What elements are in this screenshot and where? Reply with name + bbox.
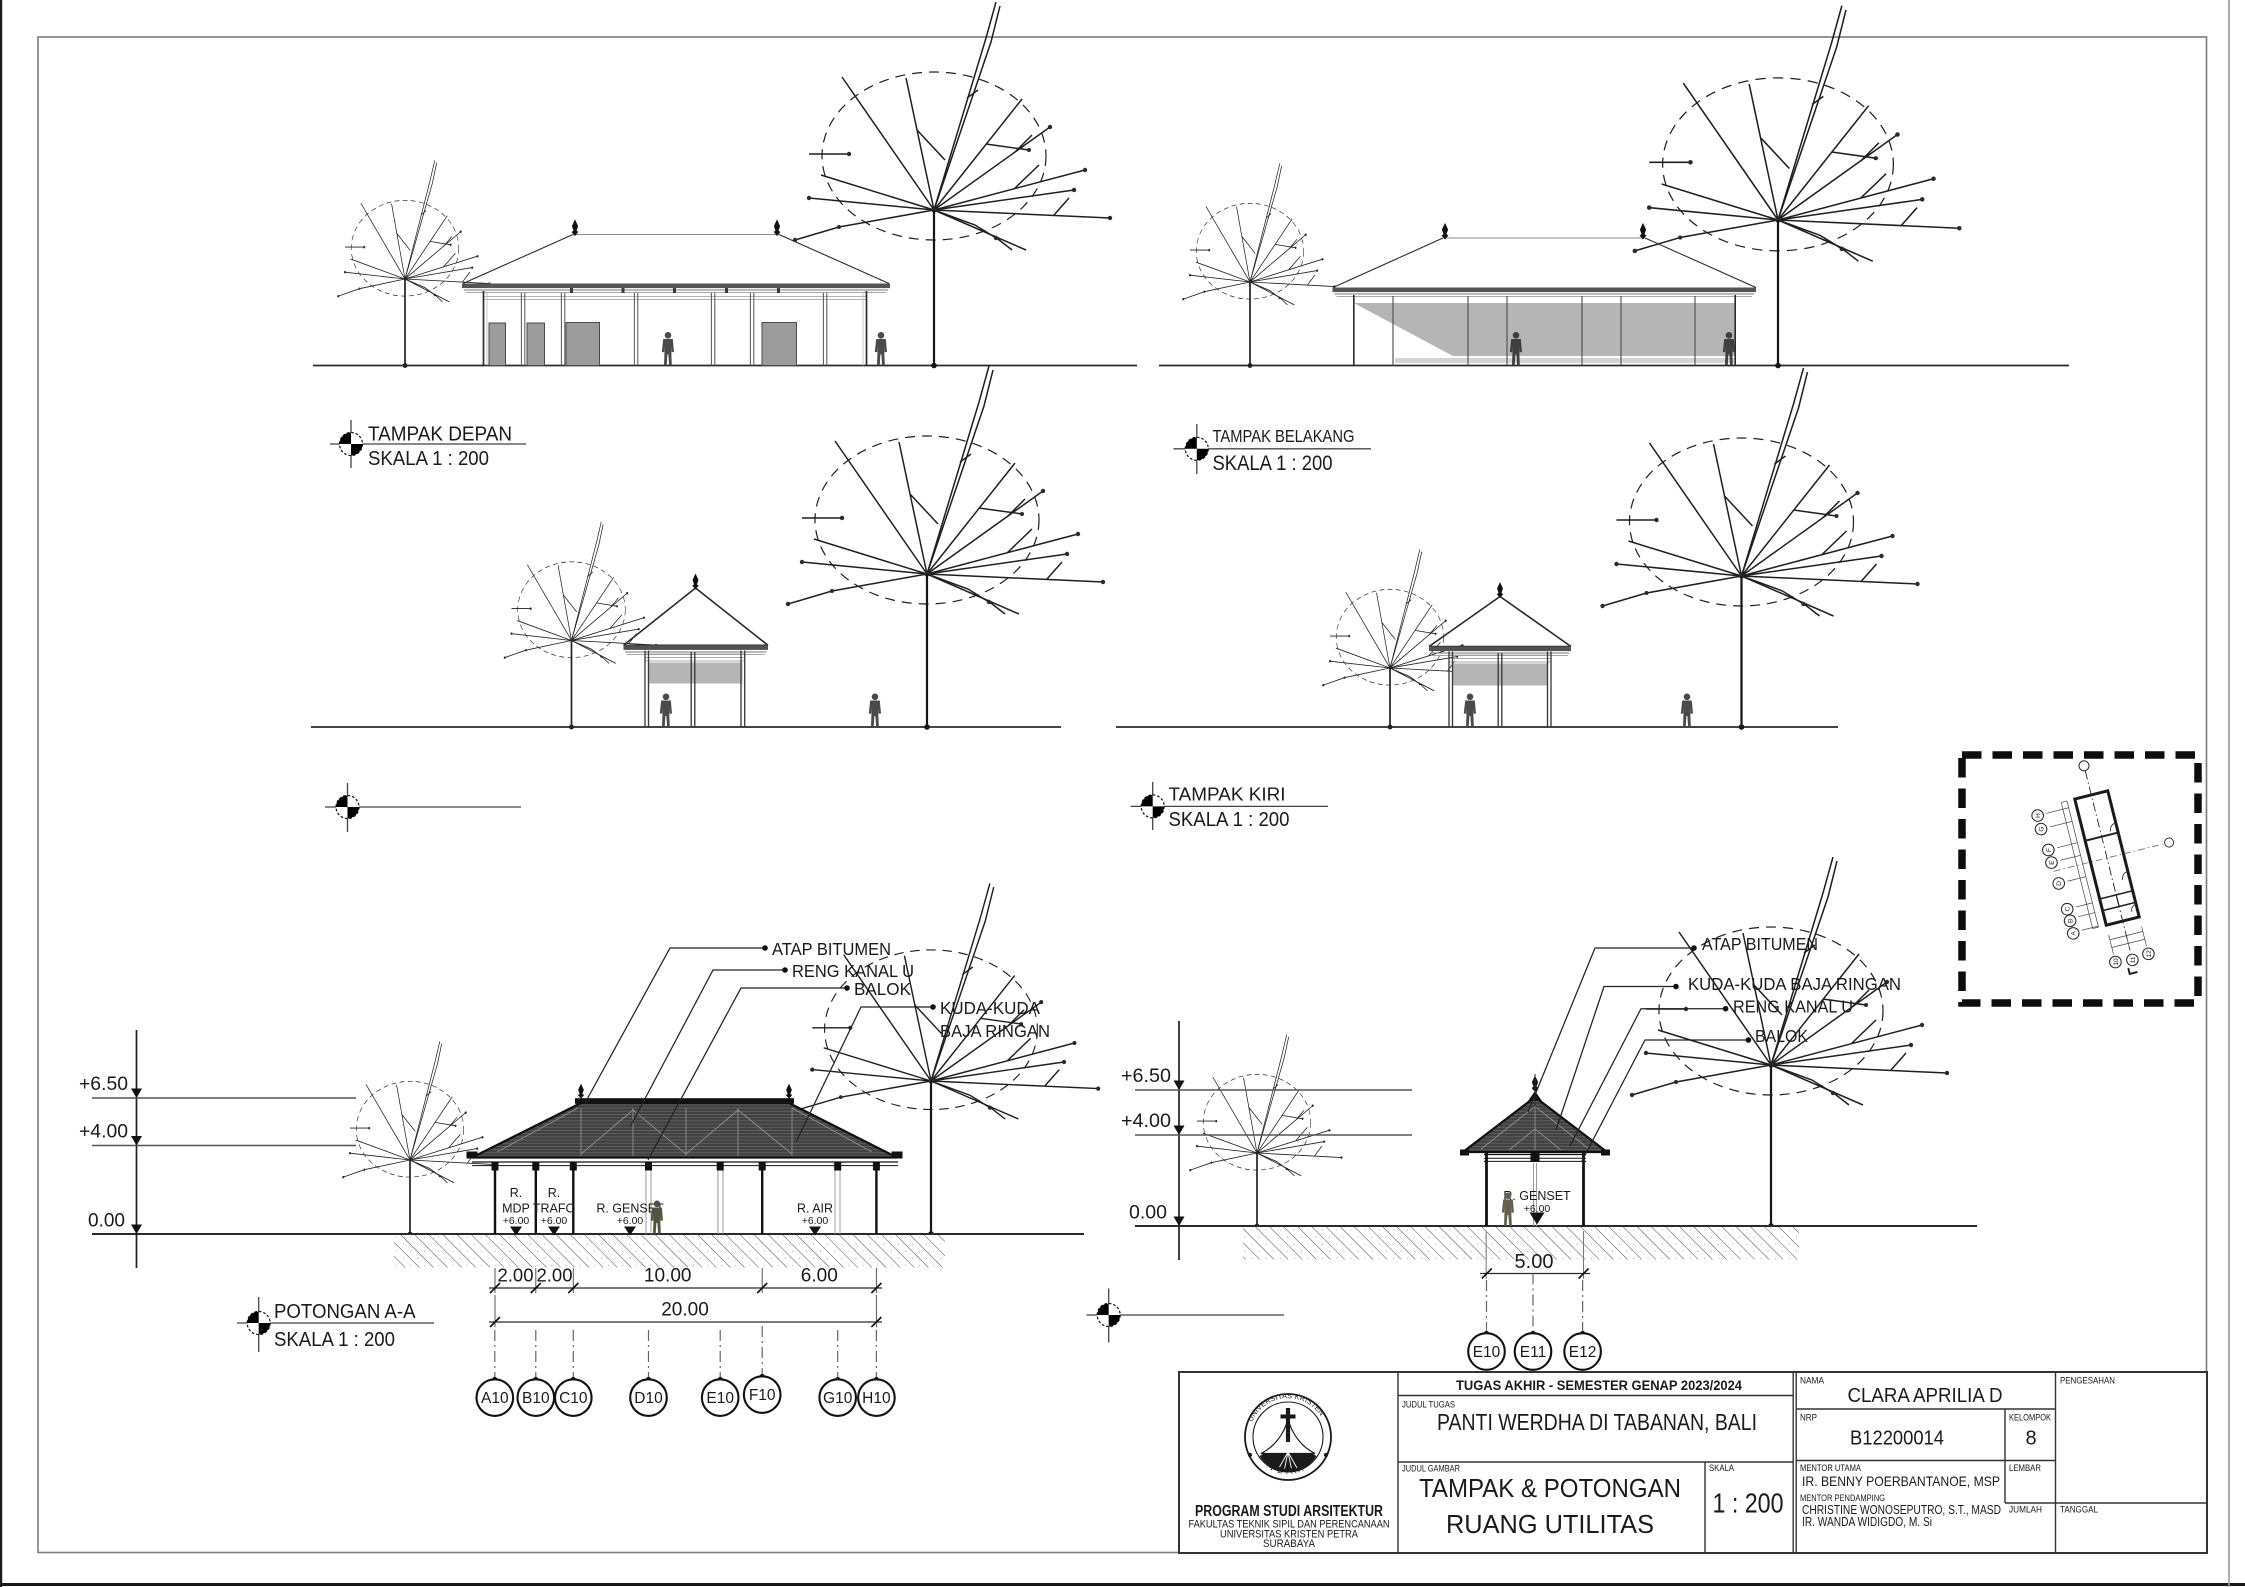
svg-text:R. GENSET: R. GENSET — [1503, 1189, 1571, 1203]
svg-text:E11: E11 — [1520, 1344, 1546, 1361]
svg-text:IR. BENNY POERBANTANOE, MSP: IR. BENNY POERBANTANOE, MSP — [1802, 1474, 2000, 1489]
svg-text:SKALA 1 : 200: SKALA 1 : 200 — [274, 1329, 395, 1351]
svg-text:SURABAYA: SURABAYA — [1263, 1538, 1316, 1550]
svg-text:F10: F10 — [749, 1387, 776, 1404]
svg-text:12: 12 — [2146, 950, 2153, 958]
svg-text:JUMLAH: JUMLAH — [2009, 1505, 2042, 1515]
svg-text:KELOMPOK: KELOMPOK — [2009, 1413, 2051, 1423]
svg-text:PROGRAM STUDI ARSITEKTUR: PROGRAM STUDI ARSITEKTUR — [1195, 1503, 1383, 1520]
svg-text:PANTI WERDHA DI TABANAN, BALI: PANTI WERDHA DI TABANAN, BALI — [1437, 1409, 1757, 1435]
svg-text:C: C — [2065, 907, 2072, 912]
svg-text:C10: C10 — [559, 1390, 588, 1407]
svg-text:H10: H10 — [862, 1390, 891, 1407]
svg-text:5.00: 5.00 — [1515, 1251, 1554, 1273]
svg-text:NRP: NRP — [1800, 1413, 1817, 1423]
svg-text:+4.00: +4.00 — [79, 1121, 128, 1143]
svg-text:1 : 200: 1 : 200 — [1713, 1488, 1784, 1519]
svg-text:PENGESAHAN: PENGESAHAN — [2060, 1376, 2115, 1386]
svg-text:E10: E10 — [1473, 1344, 1501, 1361]
svg-text:TAMPAK DEPAN: TAMPAK DEPAN — [368, 423, 512, 446]
svg-text:KUDA-KUDA: KUDA-KUDA — [940, 998, 1040, 1018]
svg-text:MENTOR PENDAMPING: MENTOR PENDAMPING — [1800, 1493, 1885, 1503]
svg-text:+4.00: +4.00 — [1121, 1110, 1171, 1132]
svg-text:CLARA APRILIA D: CLARA APRILIA D — [1848, 1385, 2003, 1407]
svg-text:MENTOR UTAMA: MENTOR UTAMA — [1800, 1463, 1861, 1473]
svg-text:+6.00: +6.00 — [802, 1215, 829, 1227]
svg-text:TRAFO: TRAFO — [533, 1202, 576, 1216]
svg-text:ATAP BITUMEN: ATAP BITUMEN — [772, 939, 891, 959]
svg-text:+6.50: +6.50 — [1121, 1065, 1171, 1087]
svg-text:2.00: 2.00 — [536, 1265, 572, 1286]
svg-text:ATAP BITUMEN: ATAP BITUMEN — [1702, 934, 1818, 954]
svg-text:JUDUL TUGAS: JUDUL TUGAS — [1402, 1400, 1455, 1410]
svg-text:KUDA-KUDA BAJA RINGAN: KUDA-KUDA BAJA RINGAN — [1688, 974, 1901, 994]
svg-text:6.00: 6.00 — [801, 1266, 838, 1287]
svg-text:20.00: 20.00 — [661, 1300, 709, 1321]
svg-text:SKALA 1 : 200: SKALA 1 : 200 — [368, 447, 489, 470]
svg-text:E12: E12 — [1569, 1344, 1597, 1361]
svg-text:TAMPAK KIRI: TAMPAK KIRI — [1169, 785, 1286, 805]
svg-text:F: F — [2046, 848, 2053, 852]
svg-text:MDP: MDP — [502, 1202, 530, 1216]
svg-text:+6.50: +6.50 — [79, 1073, 128, 1095]
svg-text:0.00: 0.00 — [88, 1210, 125, 1232]
svg-text:10.00: 10.00 — [644, 1266, 692, 1287]
svg-text:RUANG UTILITAS: RUANG UTILITAS — [1446, 1509, 1654, 1539]
svg-text:+6.00: +6.00 — [617, 1215, 644, 1227]
svg-text:SKALA 1 : 200: SKALA 1 : 200 — [1169, 809, 1290, 831]
svg-text:B10: B10 — [522, 1390, 550, 1407]
svg-text:0.00: 0.00 — [1129, 1202, 1167, 1224]
svg-text:2.00: 2.00 — [497, 1265, 533, 1286]
svg-text:B: B — [2068, 919, 2075, 923]
svg-text:TAMPAK BELAKANG: TAMPAK BELAKANG — [1213, 426, 1355, 446]
svg-text:BALOK: BALOK — [1755, 1026, 1808, 1046]
svg-text:R. AIR: R. AIR — [797, 1202, 833, 1216]
svg-text:BAJA RINGAN: BAJA RINGAN — [940, 1021, 1050, 1041]
svg-text:B12200014: B12200014 — [1850, 1428, 1944, 1450]
svg-text:G10: G10 — [823, 1390, 853, 1407]
svg-text:RENG KANAL U: RENG KANAL U — [1733, 997, 1853, 1017]
svg-text:POTONGAN A-A: POTONGAN A-A — [274, 1301, 416, 1323]
svg-text:+6.00: +6.00 — [503, 1215, 530, 1227]
svg-text:BALOK: BALOK — [854, 979, 911, 999]
svg-text:G: G — [2039, 827, 2046, 832]
svg-text:D10: D10 — [634, 1390, 663, 1407]
svg-text:TAMPAK & POTONGAN: TAMPAK & POTONGAN — [1419, 1473, 1681, 1503]
svg-text:A10: A10 — [481, 1390, 509, 1407]
svg-text:H: H — [2035, 813, 2042, 818]
svg-text:D: D — [2056, 881, 2063, 886]
svg-text:RENG KANAL U: RENG KANAL U — [792, 961, 914, 981]
svg-text:TANGGAL: TANGGAL — [2060, 1505, 2098, 1515]
svg-text:11: 11 — [2130, 956, 2137, 963]
svg-text:R.: R. — [510, 1186, 523, 1200]
svg-text:TUGAS AKHIR - SEMESTER GENAP 2: TUGAS AKHIR - SEMESTER GENAP 2023/2024 — [1456, 1378, 1742, 1393]
svg-text:JUDUL GAMBAR: JUDUL GAMBAR — [1402, 1464, 1460, 1474]
svg-text:E: E — [2049, 860, 2056, 865]
svg-text:+6.00: +6.00 — [541, 1215, 568, 1227]
svg-text:10: 10 — [2113, 958, 2120, 966]
svg-text:NAMA: NAMA — [1800, 1376, 1824, 1386]
svg-text:E10: E10 — [706, 1390, 734, 1407]
svg-text:A: A — [2071, 931, 2078, 936]
svg-text:SKALA 1 : 200: SKALA 1 : 200 — [1213, 452, 1333, 475]
svg-text:LEMBAR: LEMBAR — [2009, 1463, 2041, 1473]
svg-text:IR. WANDA WIDIGDO, M. Si: IR. WANDA WIDIGDO, M. Si — [1802, 1515, 1932, 1529]
svg-text:8: 8 — [2025, 1428, 2036, 1450]
svg-text:R.: R. — [548, 1186, 561, 1200]
svg-text:SKALA: SKALA — [1709, 1463, 1734, 1473]
